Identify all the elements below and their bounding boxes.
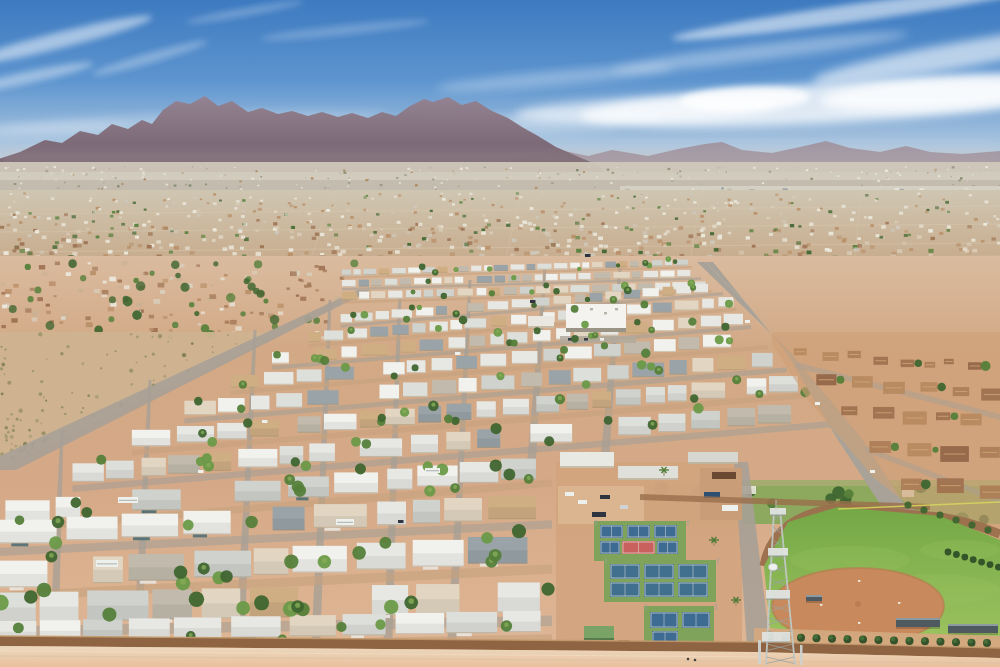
aerial-photo bbox=[0, 0, 1000, 667]
scene-svg bbox=[0, 0, 1000, 667]
